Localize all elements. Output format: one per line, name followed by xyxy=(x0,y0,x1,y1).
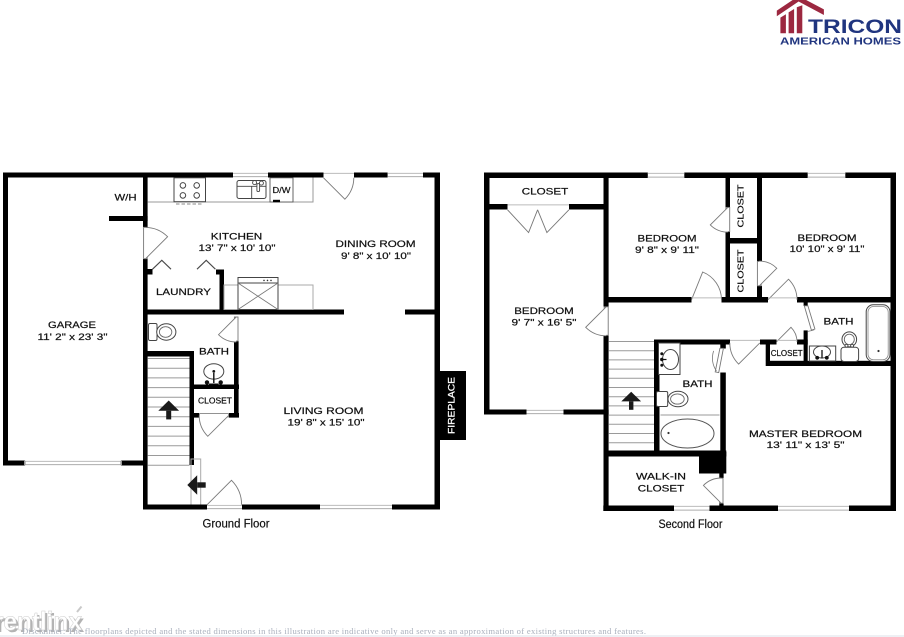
svg-text:BATH: BATH xyxy=(199,346,229,357)
svg-text:10' 10" x 9' 11": 10' 10" x 9' 11" xyxy=(790,244,865,255)
svg-text:GARAGE: GARAGE xyxy=(48,320,96,331)
svg-text:13' 11" x 13' 5": 13' 11" x 13' 5" xyxy=(767,440,845,451)
svg-text:LAUNDRY: LAUNDRY xyxy=(156,287,212,298)
svg-text:11' 2" x 23' 3": 11' 2" x 23' 3" xyxy=(38,332,108,343)
svg-text:9' 7" x 16' 5": 9' 7" x 16' 5" xyxy=(512,317,577,328)
svg-text:TRICON: TRICON xyxy=(808,16,902,38)
svg-text:MASTER BEDROOM: MASTER BEDROOM xyxy=(749,429,862,440)
svg-text:KITCHEN: KITCHEN xyxy=(211,231,263,242)
svg-text:DINING ROOM: DINING ROOM xyxy=(336,239,416,250)
svg-text:WALK-IN: WALK-IN xyxy=(636,471,686,482)
svg-text:W/H: W/H xyxy=(115,192,137,203)
svg-text:BATH: BATH xyxy=(824,316,854,327)
svg-text:CLOSET: CLOSET xyxy=(198,396,232,405)
svg-text:CLOSET: CLOSET xyxy=(736,185,746,228)
svg-text:CLOSET: CLOSET xyxy=(771,349,803,358)
svg-text:BEDROOM: BEDROOM xyxy=(514,306,574,317)
svg-text:AMERICAN HOMES: AMERICAN HOMES xyxy=(780,37,902,48)
svg-text:BEDROOM: BEDROOM xyxy=(798,233,857,244)
svg-text:13' 7" x 10' 10": 13' 7" x 10' 10" xyxy=(199,243,276,254)
svg-text:D/W: D/W xyxy=(273,186,292,195)
svg-text:CLOSET: CLOSET xyxy=(736,250,746,293)
svg-text:LIVING ROOM: LIVING ROOM xyxy=(284,406,364,417)
svg-text:Second Floor: Second Floor xyxy=(659,519,723,531)
svg-text:9' 8" x 10' 10": 9' 8" x 10' 10" xyxy=(341,251,411,262)
svg-text:CLOSET: CLOSET xyxy=(522,186,569,197)
svg-text:BATH: BATH xyxy=(683,379,713,390)
svg-text:Ground Floor: Ground Floor xyxy=(203,519,270,531)
svg-text:CLOSET: CLOSET xyxy=(638,484,685,495)
svg-text:BEDROOM: BEDROOM xyxy=(638,233,697,244)
svg-text:FIREPLACE: FIREPLACE xyxy=(447,377,457,434)
svg-text:19' 8" x 15' 10": 19' 8" x 15' 10" xyxy=(288,417,365,428)
svg-text:Disclaimer: The floorplans dep: Disclaimer: The floorplans depicted and … xyxy=(22,626,646,636)
svg-text:9' 8" x 9' 11": 9' 8" x 9' 11" xyxy=(635,245,699,256)
